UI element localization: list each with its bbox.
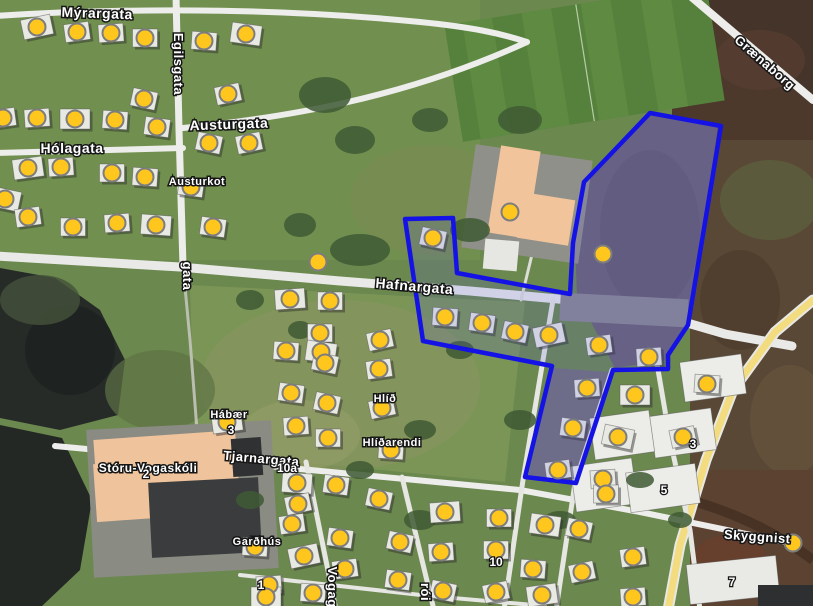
- map-marker[interactable]: [296, 548, 313, 565]
- map-marker[interactable]: [205, 219, 222, 236]
- map-marker[interactable]: [491, 510, 508, 527]
- map-marker[interactable]: [322, 293, 339, 310]
- map-marker[interactable]: [109, 215, 126, 232]
- map-marker[interactable]: [0, 110, 12, 127]
- map-marker[interactable]: [53, 159, 70, 176]
- map-marker[interactable]: [29, 19, 46, 36]
- street-label: Hábær: [210, 409, 248, 421]
- house-number-label: 7: [729, 575, 736, 589]
- map-marker[interactable]: [0, 191, 14, 208]
- map-marker[interactable]: [371, 361, 388, 378]
- house-number-label: 10: [489, 555, 503, 569]
- map-marker[interactable]: [136, 91, 153, 108]
- map-marker[interactable]: [67, 111, 84, 128]
- house-number-label: 1: [258, 578, 265, 592]
- map-marker[interactable]: [474, 315, 491, 332]
- map-marker[interactable]: [625, 549, 642, 566]
- street-label: rói: [418, 583, 433, 601]
- map-marker[interactable]: [502, 204, 519, 221]
- map-marker[interactable]: [537, 517, 554, 534]
- map-marker[interactable]: [598, 486, 615, 503]
- map-marker[interactable]: [371, 491, 388, 508]
- street-label: gata: [180, 262, 195, 291]
- map-marker[interactable]: [29, 110, 46, 127]
- map-marker[interactable]: [284, 516, 301, 533]
- map-marker[interactable]: [507, 324, 524, 341]
- map-marker[interactable]: [278, 343, 295, 360]
- map-marker[interactable]: [435, 583, 452, 600]
- map-marker[interactable]: [627, 387, 644, 404]
- map-marker[interactable]: [282, 291, 299, 308]
- street-label: Mýrargata: [61, 4, 133, 22]
- map-marker[interactable]: [699, 376, 716, 393]
- map-marker[interactable]: [290, 496, 307, 513]
- map-marker[interactable]: [641, 349, 658, 366]
- map-marker[interactable]: [437, 504, 454, 521]
- street-label: Austurkot: [169, 176, 225, 188]
- map-marker[interactable]: [525, 561, 542, 578]
- map-marker[interactable]: [20, 209, 37, 226]
- map-marker[interactable]: [550, 462, 567, 479]
- map-marker[interactable]: [320, 430, 337, 447]
- map-marker[interactable]: [328, 477, 345, 494]
- map-marker[interactable]: [196, 33, 213, 50]
- map-marker[interactable]: [312, 325, 329, 342]
- map-marker[interactable]: [317, 355, 334, 372]
- map-marker[interactable]: [390, 572, 407, 589]
- map-marker[interactable]: [238, 26, 255, 43]
- map-canvas[interactable]: MýrargataEgilsgataAusturgataHólagataAust…: [0, 0, 813, 606]
- satellite-map: MýrargataEgilsgataAusturgataHólagataAust…: [0, 0, 813, 606]
- map-marker[interactable]: [149, 119, 166, 136]
- street-label: Vogagerði: [325, 566, 340, 606]
- map-marker[interactable]: [565, 420, 582, 437]
- house-number-label: 3: [690, 437, 697, 451]
- map-marker[interactable]: [310, 254, 327, 271]
- house-number-label: 3: [228, 423, 235, 437]
- map-marker[interactable]: [289, 475, 306, 492]
- map-marker[interactable]: [591, 337, 608, 354]
- map-marker[interactable]: [319, 395, 336, 412]
- map-marker[interactable]: [433, 544, 450, 561]
- house-number-label: 2: [143, 467, 150, 481]
- map-marker[interactable]: [137, 169, 154, 186]
- street-label: Garðhús: [233, 536, 282, 548]
- map-marker[interactable]: [610, 429, 627, 446]
- map-marker[interactable]: [488, 584, 505, 601]
- map-marker[interactable]: [305, 585, 322, 602]
- map-marker[interactable]: [534, 587, 551, 604]
- map-marker[interactable]: [595, 471, 612, 488]
- map-marker[interactable]: [220, 86, 237, 103]
- house-number-label: 10a: [277, 461, 297, 475]
- map-marker[interactable]: [104, 165, 121, 182]
- map-marker[interactable]: [148, 217, 165, 234]
- map-marker[interactable]: [103, 25, 120, 42]
- street-label: Hólagata: [40, 140, 103, 156]
- street-label: Hlíðarendi: [363, 437, 422, 449]
- map-marker[interactable]: [332, 530, 349, 547]
- map-marker[interactable]: [595, 246, 612, 263]
- map-marker[interactable]: [201, 135, 218, 152]
- map-marker[interactable]: [241, 135, 258, 152]
- street-label: Austurgata: [189, 115, 268, 134]
- map-marker[interactable]: [574, 564, 591, 581]
- map-marker[interactable]: [288, 418, 305, 435]
- street-label: Hlíð: [374, 393, 397, 405]
- map-marker[interactable]: [625, 589, 642, 606]
- map-marker[interactable]: [137, 30, 154, 47]
- street-label: Egilsgata: [171, 33, 186, 96]
- map-marker[interactable]: [437, 309, 454, 326]
- map-marker[interactable]: [541, 327, 558, 344]
- map-marker[interactable]: [69, 24, 86, 41]
- map-marker[interactable]: [392, 534, 409, 551]
- map-marker[interactable]: [425, 230, 442, 247]
- map-marker[interactable]: [283, 385, 300, 402]
- map-marker[interactable]: [571, 521, 588, 538]
- map-marker[interactable]: [579, 380, 596, 397]
- house-number-label: 5: [661, 483, 668, 497]
- map-marker[interactable]: [372, 332, 389, 349]
- map-marker[interactable]: [107, 112, 124, 129]
- map-marker[interactable]: [20, 160, 37, 177]
- map-marker[interactable]: [65, 219, 82, 236]
